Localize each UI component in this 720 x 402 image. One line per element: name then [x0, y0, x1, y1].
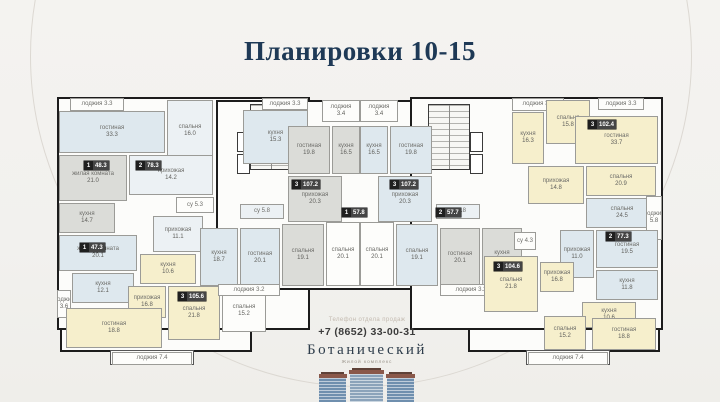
room-bedroom-15-2-r: спальня15.2: [544, 316, 586, 350]
room-su-5-3: су 5.3: [176, 197, 214, 213]
room-bedroom-19-1-l: спальня19.1: [282, 224, 324, 286]
room-living-19-8-r: гостиная19.8: [390, 126, 432, 174]
room-loggia-a: лоджия 3.3: [70, 98, 124, 111]
room-loggia-3-2-l: лоджия 3.2: [218, 284, 280, 296]
apartment-badge: 3107.2: [390, 180, 418, 189]
building-illustration: [319, 368, 415, 402]
room-bedroom-16-0: спальня16.0: [167, 100, 213, 162]
room-bedroom-20-9: спальня20.9: [586, 166, 656, 196]
brand-name: Ботанический: [287, 342, 447, 359]
room-living-18-8-l: гостиная18.8: [66, 308, 162, 348]
elevator-shaft: [470, 132, 483, 152]
apartment-badge: 278.3: [136, 161, 161, 170]
room-su-4-3: су 4.3: [514, 232, 536, 250]
apartment-badge: 3105.6: [178, 292, 206, 301]
room-room-20-1: жилая комната20.1: [59, 235, 137, 271]
contact-block: Телефон отдела продаж +7 (8652) 33-00-31…: [287, 317, 447, 366]
room-hall-14-8: прихожая14.8: [528, 166, 584, 204]
apartment-badge: 277.3: [606, 232, 631, 241]
room-bedroom-20-1-wl: спальня20.1: [326, 222, 360, 286]
apartment-badge: 147.3: [80, 243, 105, 252]
stair-core-right: [428, 104, 470, 170]
apartment-badge: 257.7: [436, 208, 461, 217]
apartment-badge: 3107.2: [292, 180, 320, 189]
apartment-badge: 157.8: [342, 208, 367, 217]
room-kitchen-18-7-l: кухня18.7: [200, 228, 238, 286]
room-kitchen-10-6-l: кухня10.6: [140, 254, 196, 284]
room-living-33-3: гостиная33.3: [59, 111, 165, 153]
room-kitchen-11-8: кухня11.8: [596, 270, 658, 300]
room-su-5-8-l: су 5.8: [240, 204, 284, 219]
elevator-shaft: [470, 154, 483, 174]
brand-subtitle: Жилой комплекс: [303, 360, 431, 365]
room-living-20-1-r: гостиная20.1: [440, 228, 480, 288]
screenshot-root: Планировки 10-15 лоджия 3.3гостиная33.3с…: [0, 0, 720, 402]
room-loggia-3-4-l: лоджия3.4: [322, 100, 360, 122]
room-kitchen-16-5-r: кухня16.5: [360, 126, 388, 174]
room-hall-16-8-r: прихожая16.8: [540, 262, 574, 292]
room-bedroom-19-1-r: спальня19.1: [396, 224, 438, 286]
building-tower-center: [350, 370, 383, 402]
room-loggia-7-4-r: лоджия 7.4: [528, 352, 608, 365]
room-kitchen-12-1: кухня12.1: [72, 273, 134, 303]
room-loggia-3-4-r: лоджия3.4: [360, 100, 398, 122]
room-living-18-8-r: гостиная18.8: [592, 318, 656, 350]
tower-windows: [387, 378, 414, 402]
room-loggia-b: лоджия 3.3: [262, 98, 308, 110]
room-kitchen-16-3: кухня16.3: [512, 112, 544, 164]
apartment-badge: 148.3: [84, 161, 109, 170]
apartment-badge: 3102.4: [588, 120, 616, 129]
sales-phone-label: Телефон отдела продаж: [287, 317, 447, 323]
room-bedroom-15-2-l: спальня15.2: [222, 290, 266, 332]
building-tower-right: [387, 374, 414, 402]
room-kitchen-14-7: кухня14.7: [59, 203, 115, 233]
building-tower-left: [319, 374, 346, 402]
apartment-badge: 3104.6: [494, 262, 522, 271]
room-kitchen-16-5-l: кухня16.5: [332, 126, 360, 174]
tower-windows: [319, 378, 346, 402]
room-living-20-1-l: гостиная20.1: [240, 228, 280, 288]
room-bedroom-20-1-wr: спальня20.1: [360, 222, 394, 286]
room-hall-11-1: прихожая11.1: [153, 216, 203, 252]
tower-windows: [350, 374, 383, 402]
room-living-19-8-l: гостиная19.8: [288, 126, 330, 174]
room-loggia-7-4-l: лоджия 7.4: [112, 352, 192, 365]
room-loggia-c: лоджия 3.3: [598, 98, 644, 110]
sales-phone-number: +7 (8652) 33-00-31: [287, 326, 447, 338]
